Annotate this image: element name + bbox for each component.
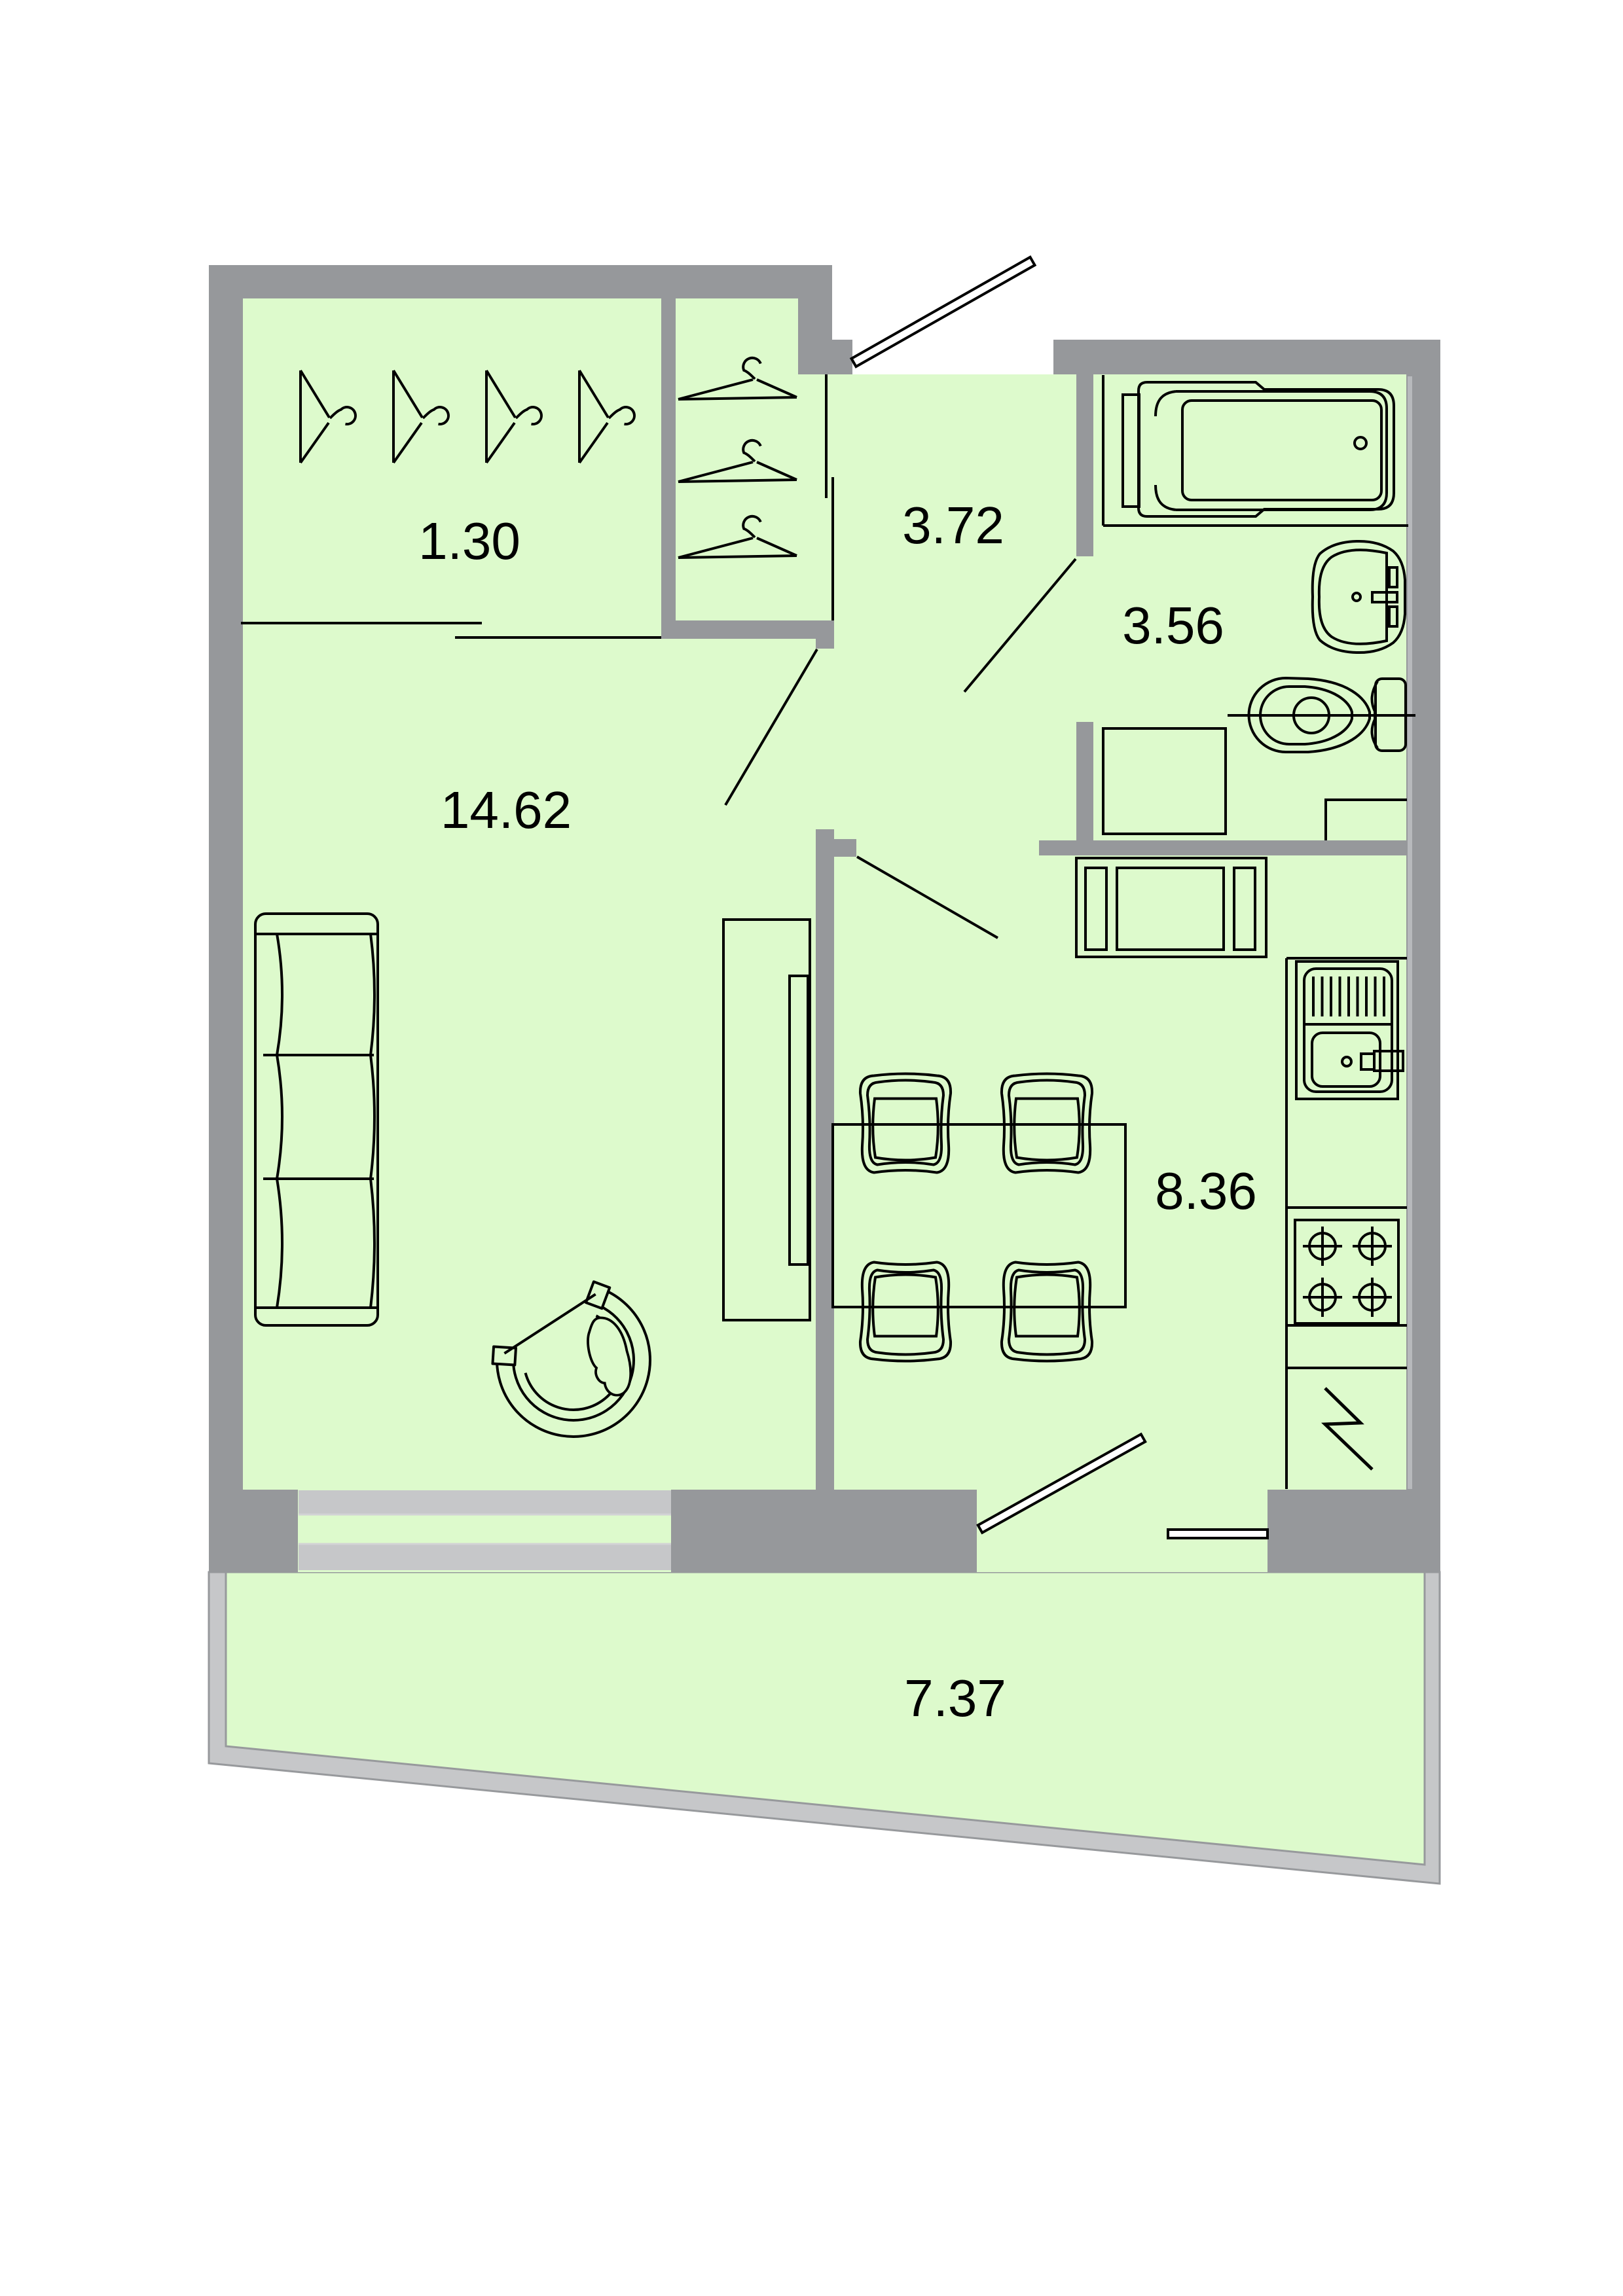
svg-text:14.62: 14.62: [441, 781, 572, 839]
svg-text:8.36: 8.36: [1155, 1162, 1257, 1220]
svg-text:3.56: 3.56: [1122, 596, 1224, 655]
svg-text:7.37: 7.37: [904, 1669, 1006, 1727]
svg-text:3.72: 3.72: [902, 496, 1004, 554]
svg-text:1.30: 1.30: [418, 512, 520, 570]
